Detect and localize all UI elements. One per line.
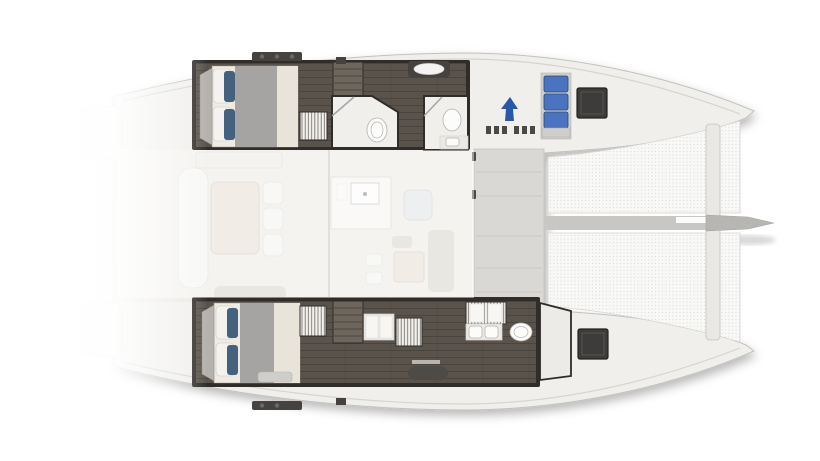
port-bathroom-forward (424, 96, 468, 150)
bed-duvet (235, 66, 277, 147)
port-aft-cabin-bed (200, 66, 298, 147)
winch (260, 403, 264, 407)
bed-foot-runner (277, 66, 298, 147)
starboard-louvered-locker (300, 306, 326, 336)
pillow-blue (224, 109, 235, 140)
cleat (486, 126, 491, 134)
pillow-blue (227, 308, 238, 338)
foredeck-trampoline-area (546, 121, 774, 342)
stern-fade-overlay (58, 50, 208, 415)
winch (275, 54, 279, 58)
blue-cushion (544, 94, 568, 110)
blue-cushion (544, 112, 568, 128)
forward-cockpit-platform (474, 149, 544, 314)
spine-white-fitting (676, 217, 706, 223)
cabinet-panel (488, 304, 502, 322)
forward-locker-compartment (540, 303, 571, 380)
catamaran-floorplan (0, 0, 820, 461)
roof-fitting (336, 398, 346, 405)
bowsprit (706, 215, 774, 231)
roof-fitting (336, 57, 346, 64)
forward-crossbeam (706, 124, 720, 340)
corridor-table (412, 360, 440, 364)
cleat (522, 126, 527, 134)
forward-blue-bench (541, 73, 571, 139)
blue-cushion (544, 76, 568, 92)
bed-duvet (240, 303, 274, 383)
starboard-aft-cabin-bed (202, 303, 300, 383)
starboard-hull-interior (192, 297, 571, 387)
sink (446, 138, 459, 146)
sink (469, 326, 482, 338)
foot-of-bed-bench (258, 372, 292, 382)
cleat (530, 126, 535, 134)
cleat (502, 126, 507, 134)
toilet (367, 118, 387, 142)
corridor-settee (408, 366, 448, 380)
cabinet-panel (470, 304, 484, 322)
sink (485, 326, 498, 338)
pillow-blue (227, 345, 238, 375)
port-louvered-locker (300, 112, 327, 140)
winch (290, 54, 294, 58)
toilet (510, 323, 532, 341)
starboard-louvered-locker (396, 318, 422, 346)
port-companionway-stairs (333, 62, 363, 98)
bench-step (542, 128, 570, 137)
pillow-blue (224, 71, 235, 102)
bed-foot-runner (274, 303, 300, 383)
cleat (514, 126, 519, 134)
cleat (494, 126, 499, 134)
liferaft-oval (414, 64, 444, 75)
catamaran-floorplan-canvas (0, 0, 820, 461)
vanity-panel (380, 316, 392, 338)
winch (260, 54, 264, 58)
vanity-panel (366, 316, 378, 338)
toilet (443, 109, 461, 131)
winch (275, 403, 279, 407)
